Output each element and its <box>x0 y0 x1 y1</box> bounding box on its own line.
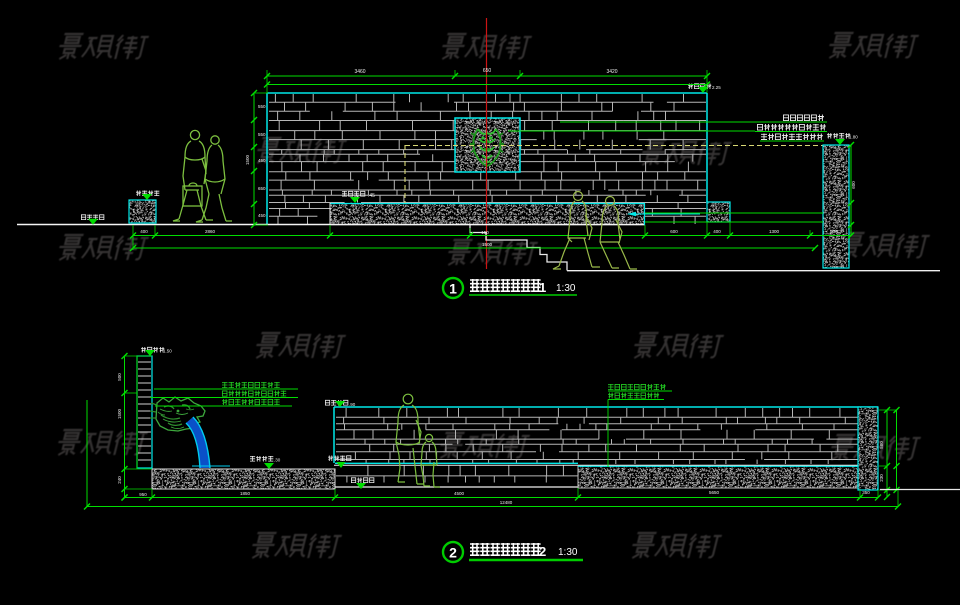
svg-text:1500: 1500 <box>117 408 122 419</box>
svg-text:1850: 1850 <box>240 491 251 496</box>
svg-text:3460: 3460 <box>354 69 365 75</box>
svg-text:650: 650 <box>483 68 492 74</box>
svg-text:150: 150 <box>481 230 489 235</box>
svg-text:450: 450 <box>258 213 266 218</box>
svg-text:500: 500 <box>117 373 122 381</box>
svg-text:1.80: 1.80 <box>849 135 858 140</box>
svg-text:400: 400 <box>140 229 148 234</box>
svg-text:2.25: 2.25 <box>712 85 721 90</box>
svg-text:230: 230 <box>879 474 884 482</box>
svg-text:950: 950 <box>139 492 147 497</box>
svg-text:550: 550 <box>258 132 266 137</box>
svg-text:2860: 2860 <box>205 229 216 234</box>
svg-text:1: 1 <box>539 280 546 295</box>
svg-text:4500: 4500 <box>454 491 465 496</box>
svg-text:400: 400 <box>713 229 721 234</box>
svg-text:600: 600 <box>670 229 678 234</box>
svg-text:12480: 12480 <box>500 500 513 505</box>
svg-text:.30: .30 <box>274 458 281 463</box>
svg-text:550: 550 <box>258 104 266 109</box>
svg-text:1.50: 1.50 <box>163 349 172 354</box>
svg-text:600: 600 <box>851 181 856 189</box>
svg-text:2: 2 <box>539 544 546 559</box>
svg-text:3420: 3420 <box>606 69 617 75</box>
svg-text:1:30: 1:30 <box>558 547 578 558</box>
svg-text:1: 1 <box>449 281 457 297</box>
svg-text:1500: 1500 <box>482 242 493 247</box>
svg-text:1300: 1300 <box>769 229 780 234</box>
svg-text:2: 2 <box>449 545 457 561</box>
svg-text:1:30: 1:30 <box>556 283 576 294</box>
svg-text:650: 650 <box>258 186 266 191</box>
svg-text:1500: 1500 <box>245 154 250 165</box>
svg-text:.90: .90 <box>349 402 356 407</box>
svg-text:240: 240 <box>117 476 122 484</box>
svg-text:580: 580 <box>879 441 884 449</box>
svg-text:450: 450 <box>258 158 266 163</box>
svg-text:5650: 5650 <box>709 490 720 495</box>
svg-text:600: 600 <box>830 229 838 234</box>
svg-text:.45: .45 <box>368 193 375 199</box>
svg-text:350: 350 <box>862 490 870 495</box>
